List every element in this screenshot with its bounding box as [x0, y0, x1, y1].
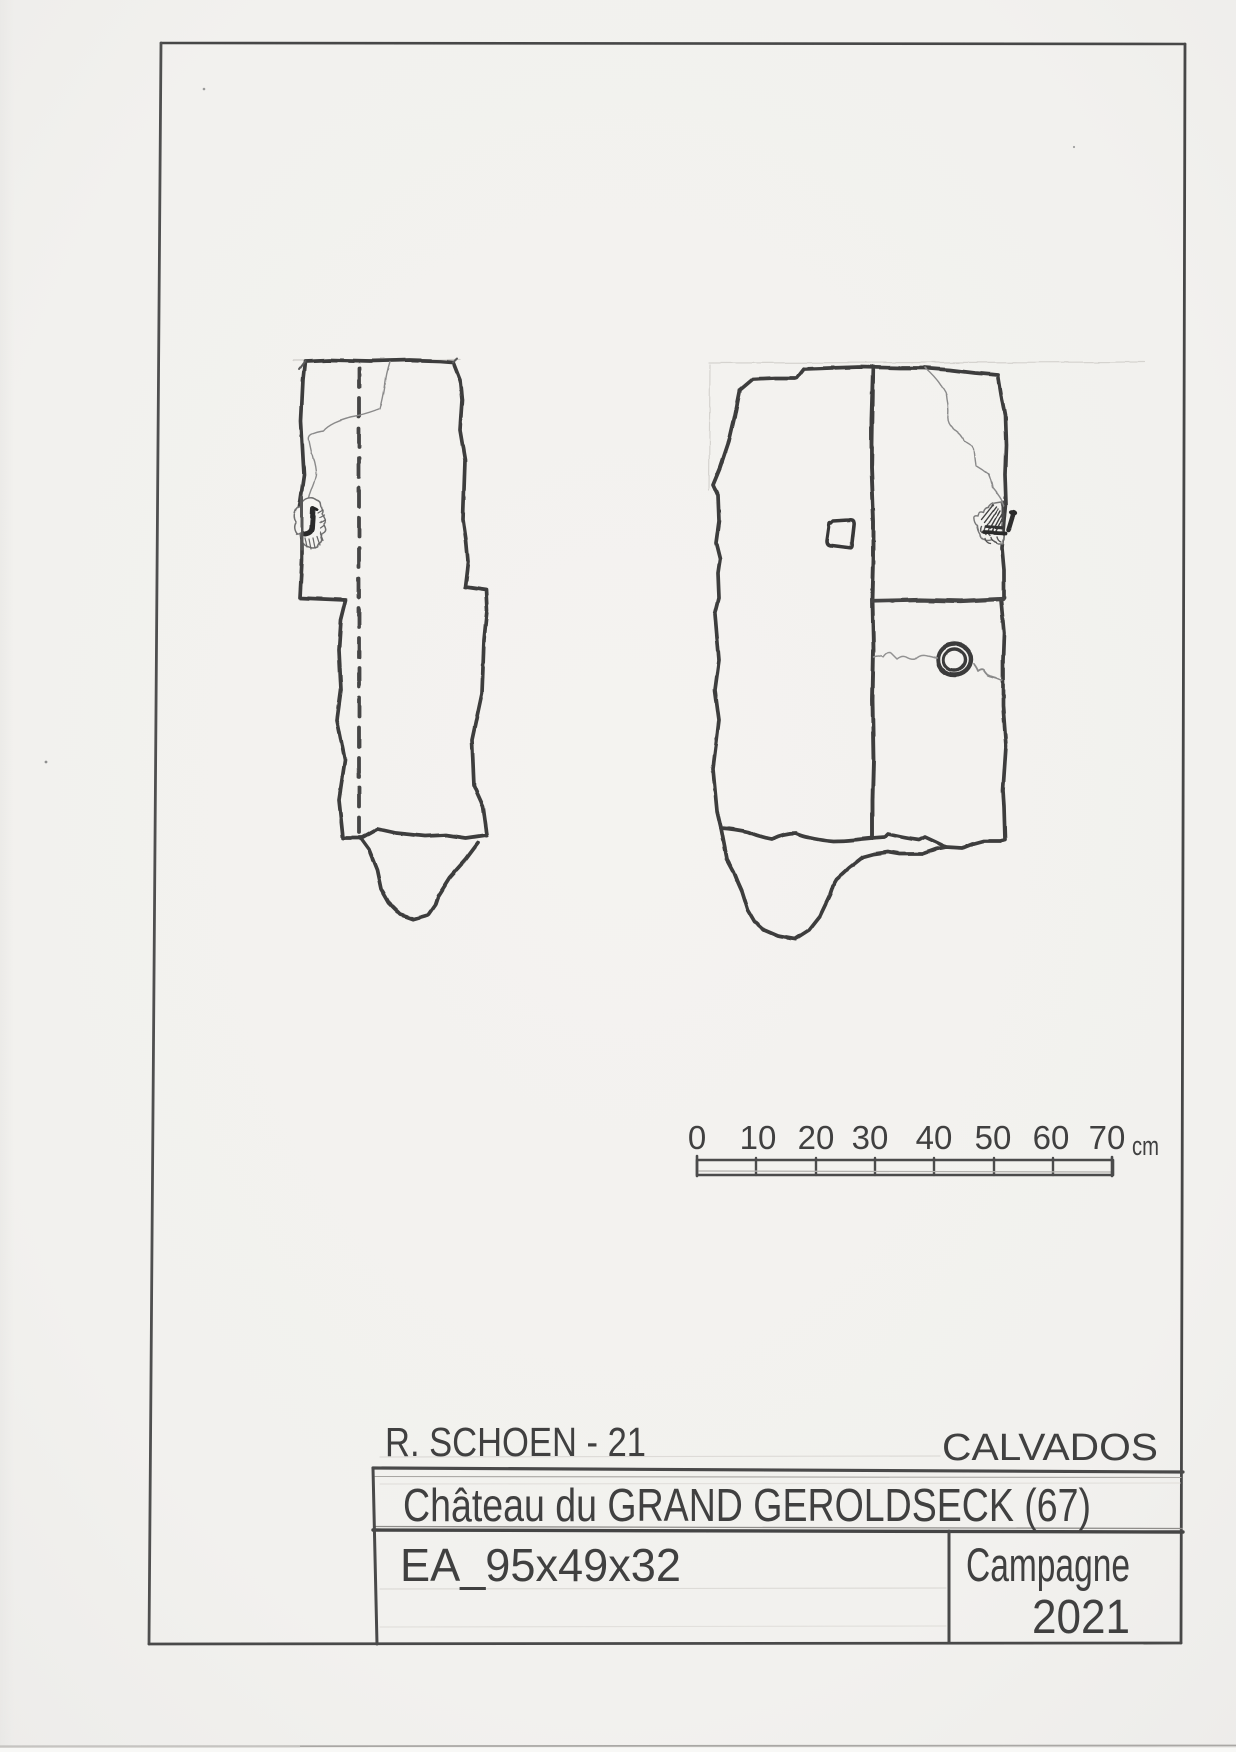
- svg-text:0: 0: [688, 1119, 706, 1156]
- svg-text:R. SCHOEN - 21: R. SCHOEN - 21: [385, 1419, 646, 1465]
- svg-text:EA_95x49x32: EA_95x49x32: [400, 1539, 681, 1591]
- svg-text:CALVADOS: CALVADOS: [942, 1427, 1158, 1469]
- svg-text:60: 60: [1033, 1119, 1070, 1156]
- svg-text:50: 50: [975, 1119, 1012, 1156]
- svg-text:Campagne: Campagne: [966, 1538, 1130, 1591]
- svg-text:2021: 2021: [1032, 1591, 1130, 1644]
- svg-text:20: 20: [798, 1119, 835, 1156]
- svg-text:10: 10: [740, 1119, 777, 1156]
- svg-text:30: 30: [852, 1119, 889, 1156]
- svg-text:70: 70: [1089, 1119, 1126, 1156]
- svg-text:Château du GRAND GEROLDSECK (6: Château du GRAND GEROLDSECK (67): [403, 1479, 1091, 1531]
- svg-text:cm: cm: [1132, 1131, 1159, 1161]
- svg-text:40: 40: [916, 1119, 953, 1156]
